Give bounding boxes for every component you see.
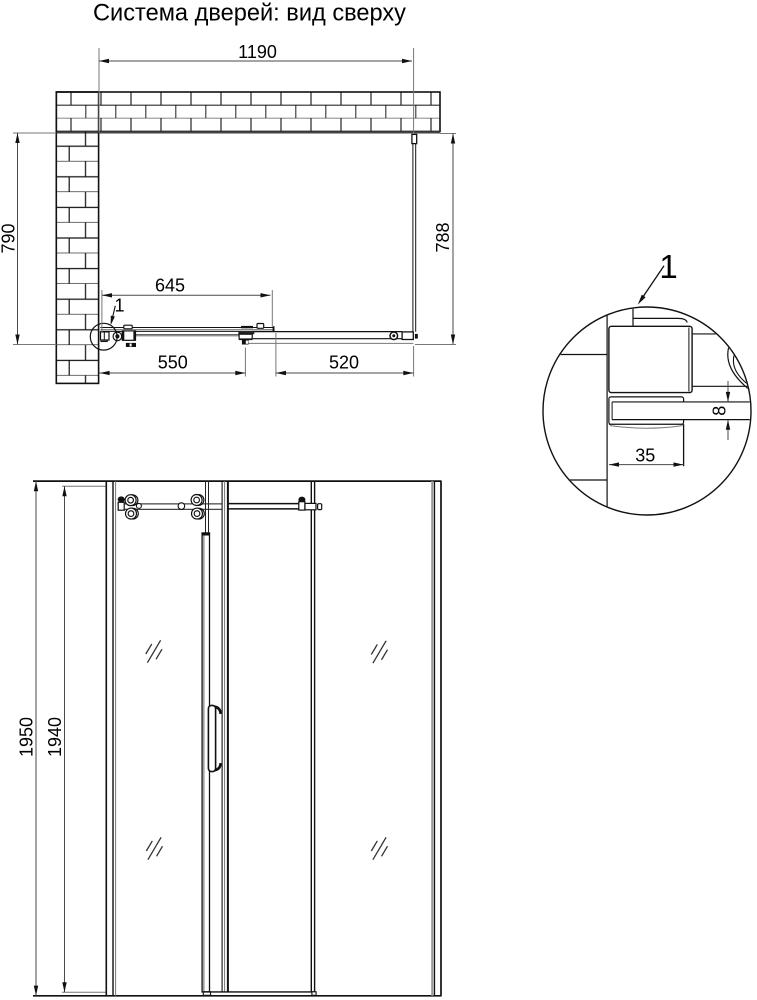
svg-text:1: 1	[659, 248, 677, 285]
svg-text:35: 35	[635, 446, 655, 466]
svg-text:1950: 1950	[16, 717, 36, 757]
svg-text:1190: 1190	[238, 42, 277, 62]
svg-text:Система дверей: вид сверху: Система дверей: вид сверху	[93, 1, 406, 27]
svg-text:1940: 1940	[45, 717, 65, 757]
svg-text:550: 550	[158, 353, 188, 373]
svg-text:645: 645	[155, 275, 185, 295]
svg-text:790: 790	[0, 223, 19, 253]
svg-text:1: 1	[114, 296, 124, 316]
svg-text:520: 520	[329, 353, 359, 373]
svg-text:788: 788	[433, 222, 453, 252]
svg-text:8: 8	[710, 406, 730, 416]
